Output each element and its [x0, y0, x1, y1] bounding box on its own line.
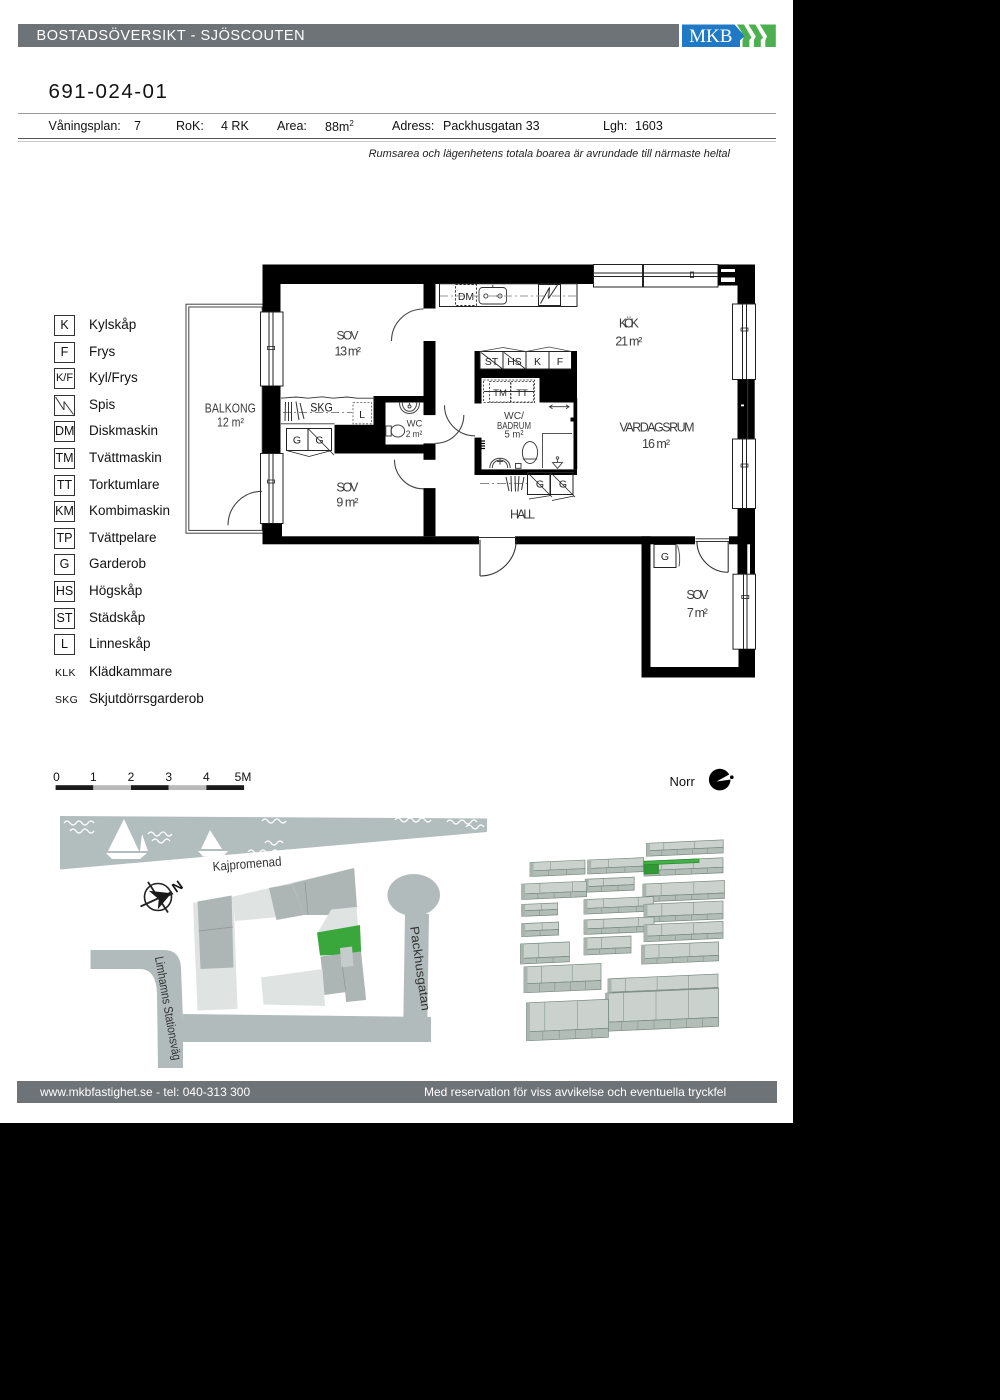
svg-text:5 m²: 5 m² — [505, 430, 525, 441]
svg-text:HS: HS — [507, 356, 522, 368]
svg-text:G: G — [536, 479, 544, 491]
svg-text:Norr: Norr — [670, 774, 696, 789]
svg-text:SOV: SOV — [336, 481, 359, 495]
svg-text:F: F — [557, 356, 563, 368]
svg-text:16 m²: 16 m² — [642, 437, 670, 451]
svg-text:ST: ST — [485, 356, 499, 368]
svg-text:BALKONG: BALKONG — [205, 402, 256, 416]
svg-text:2 m²: 2 m² — [406, 429, 423, 440]
svg-text:G: G — [315, 435, 323, 447]
svg-text:7 m²: 7 m² — [687, 606, 708, 620]
svg-text:DM: DM — [458, 291, 474, 303]
svg-text:0: 0 — [53, 770, 60, 784]
svg-text:SKG: SKG — [310, 401, 333, 415]
svg-text:SOV: SOV — [686, 588, 709, 602]
svg-text:13 m²: 13 m² — [335, 344, 362, 358]
svg-text:G: G — [661, 551, 669, 563]
svg-text:1: 1 — [90, 770, 97, 784]
svg-text:4: 4 — [203, 770, 210, 784]
svg-text:TM: TM — [493, 388, 507, 399]
svg-text:KÖK: KÖK — [619, 316, 640, 330]
svg-text:TT: TT — [516, 388, 528, 399]
svg-text:VARDAGSRUM: VARDAGSRUM — [620, 421, 695, 435]
svg-text:G: G — [559, 479, 567, 491]
svg-text:L: L — [359, 409, 365, 421]
svg-text:2: 2 — [128, 770, 135, 784]
svg-text:G: G — [293, 435, 301, 447]
svg-text:Kajpromenad: Kajpromenad — [212, 854, 282, 874]
svg-text:5M: 5M — [235, 770, 252, 784]
svg-text:3: 3 — [165, 770, 172, 784]
svg-text:12 m²: 12 m² — [217, 416, 244, 430]
svg-text:SOV: SOV — [337, 329, 359, 343]
svg-text:HALL: HALL — [510, 508, 535, 522]
svg-text:K: K — [534, 356, 541, 368]
svg-text:21 m²: 21 m² — [615, 334, 642, 348]
svg-text:9 m²: 9 m² — [336, 496, 358, 510]
